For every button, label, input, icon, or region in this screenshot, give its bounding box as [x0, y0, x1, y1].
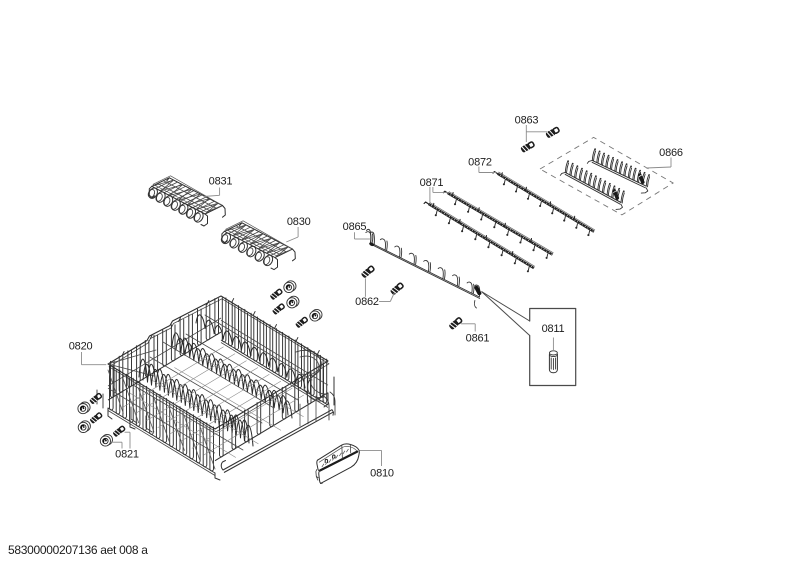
- svg-text:0811: 0811: [542, 323, 565, 335]
- svg-text:0820: 0820: [69, 341, 93, 353]
- svg-text:0810: 0810: [370, 468, 394, 480]
- svg-text:0872: 0872: [468, 157, 492, 169]
- svg-text:0866: 0866: [659, 147, 683, 159]
- svg-text:0830: 0830: [287, 216, 311, 228]
- svg-text:0863: 0863: [515, 115, 539, 127]
- svg-text:0862: 0862: [355, 296, 379, 308]
- svg-text:0865: 0865: [343, 221, 367, 233]
- svg-text:0861: 0861: [466, 333, 490, 345]
- svg-text:0831: 0831: [209, 176, 233, 188]
- svg-text:0821: 0821: [115, 449, 139, 461]
- svg-text:0871: 0871: [420, 177, 444, 189]
- svg-text:58300000207136 aet 008 a: 58300000207136 aet 008 a: [8, 543, 148, 557]
